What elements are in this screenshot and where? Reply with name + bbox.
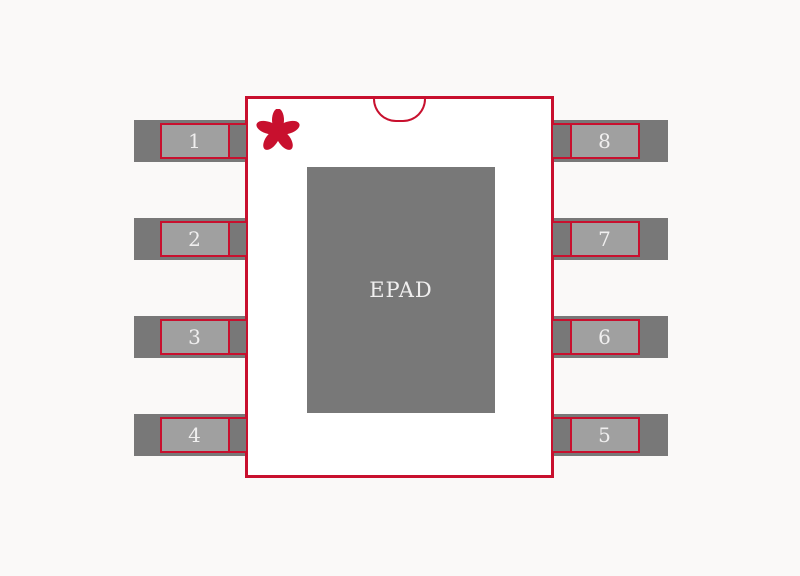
pin-7-land: 7 (570, 221, 640, 257)
pin-4-land: 4 (160, 417, 230, 453)
pin-5-number: 5 (598, 425, 611, 445)
pin-4-number: 4 (188, 425, 201, 445)
epad-label: EPAD (369, 278, 433, 302)
pin-8-land: 8 (570, 123, 640, 159)
pin-6: 6 (551, 319, 639, 355)
pin-2: 2 (160, 221, 248, 257)
pin-3: 3 (160, 319, 248, 355)
pin-1-number: 1 (188, 131, 201, 151)
pin-3-land: 3 (160, 319, 230, 355)
package-body: EPAD (245, 96, 554, 478)
pin-6-number: 6 (598, 327, 611, 347)
pin-4: 4 (160, 417, 248, 453)
pin-5: 5 (551, 417, 639, 453)
asterisk-icon (256, 109, 300, 153)
pin-1-land: 1 (160, 123, 230, 159)
pin-6-land: 6 (570, 319, 640, 355)
pin-2-number: 2 (188, 229, 201, 249)
exposed-pad: EPAD (307, 167, 495, 413)
semicircle-notch-icon (373, 99, 426, 122)
pin-2-land: 2 (160, 221, 230, 257)
pin-1: 1 (160, 123, 248, 159)
pin-7-number: 7 (598, 229, 611, 249)
pin-7: 7 (551, 221, 639, 257)
pin-8-number: 8 (598, 131, 611, 151)
pin-8: 8 (551, 123, 639, 159)
pin-5-land: 5 (570, 417, 640, 453)
pin-3-number: 3 (188, 327, 201, 347)
footprint-diagram: EPAD 1 2 3 4 8 7 6 (0, 0, 800, 576)
